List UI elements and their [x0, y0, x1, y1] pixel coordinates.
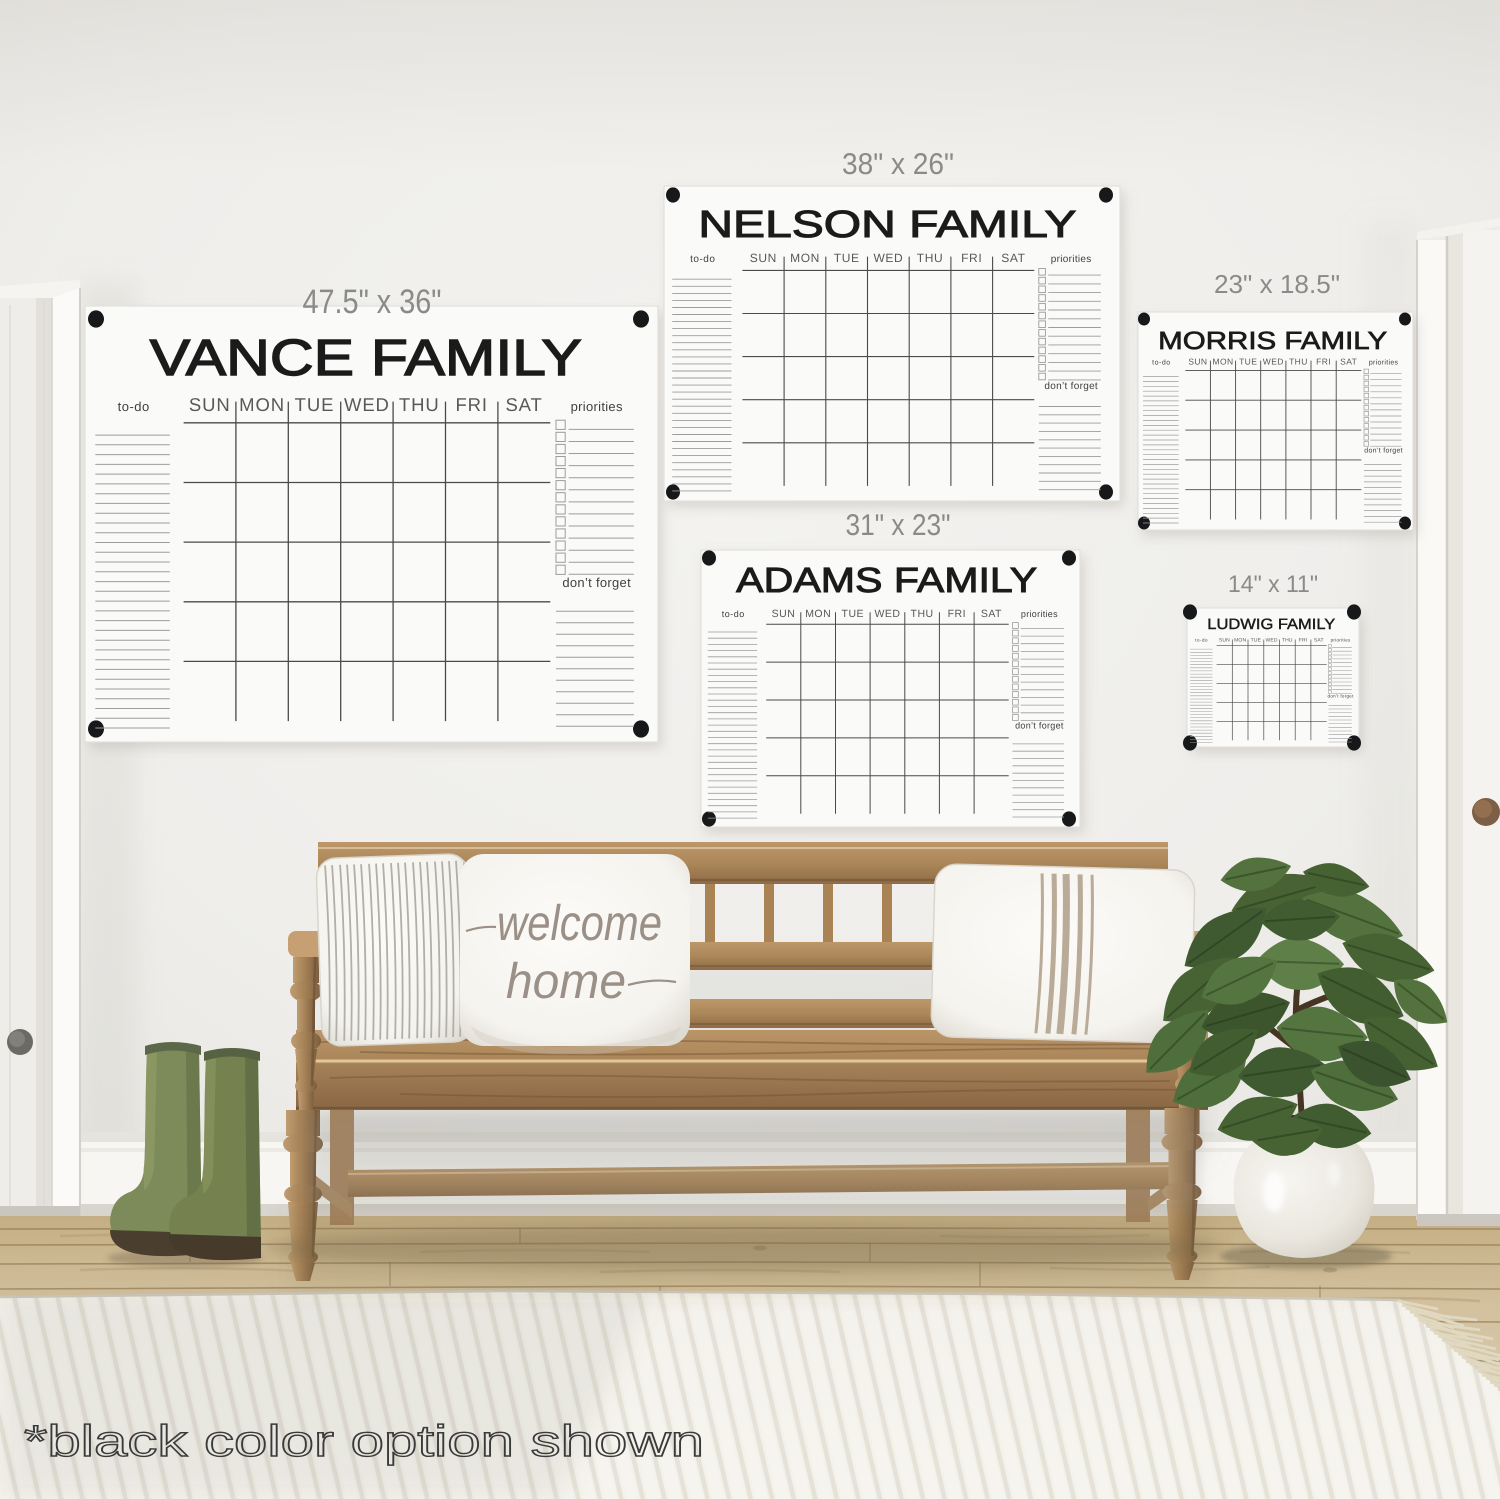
svg-text:47.5" x 36": 47.5" x 36"	[303, 283, 442, 321]
svg-text:FRI: FRI	[961, 251, 982, 265]
svg-text:priorities: priorities	[1369, 359, 1399, 367]
svg-text:WED: WED	[344, 394, 390, 415]
svg-text:to-do: to-do	[118, 399, 150, 414]
svg-text:don’t forget: don’t forget	[1328, 694, 1355, 699]
svg-text:WED: WED	[875, 608, 901, 620]
svg-text:TUE: TUE	[1251, 638, 1262, 644]
svg-text:MON: MON	[239, 394, 285, 415]
svg-text:SAT: SAT	[981, 608, 1002, 620]
svg-text:TUE: TUE	[834, 251, 860, 265]
svg-text:14" x 11": 14" x 11"	[1228, 571, 1318, 598]
svg-text:home: home	[506, 953, 626, 1009]
svg-text:SAT: SAT	[505, 394, 542, 415]
svg-text:SUN: SUN	[772, 608, 796, 620]
svg-text:THU: THU	[917, 251, 943, 265]
svg-text:THU: THU	[1282, 638, 1293, 644]
svg-text:MORRIS FAMILY: MORRIS FAMILY	[1158, 327, 1387, 355]
svg-text:TUE: TUE	[295, 394, 335, 415]
svg-text:WED: WED	[1263, 357, 1284, 367]
svg-text:to-do: to-do	[722, 609, 745, 619]
svg-text:welcome: welcome	[497, 895, 662, 951]
svg-text:don’t forget: don’t forget	[1015, 721, 1064, 731]
svg-text:NELSON FAMILY: NELSON FAMILY	[698, 204, 1076, 246]
svg-text:priorities: priorities	[1051, 254, 1092, 265]
svg-text:FRI: FRI	[1299, 638, 1308, 644]
svg-text:MON: MON	[790, 251, 820, 265]
svg-text:THU: THU	[1289, 357, 1308, 367]
svg-text:priorities: priorities	[1331, 638, 1351, 643]
svg-text:TUE: TUE	[1239, 357, 1257, 367]
svg-text:SUN: SUN	[750, 251, 777, 265]
svg-text:38" x 26": 38" x 26"	[842, 148, 954, 181]
svg-text:WED: WED	[874, 251, 904, 265]
svg-text:MON: MON	[1234, 638, 1246, 644]
svg-text:WED: WED	[1265, 638, 1277, 644]
svg-text:priorities: priorities	[1021, 609, 1058, 619]
svg-text:SUN: SUN	[1188, 357, 1207, 367]
svg-text:don’t forget: don’t forget	[1364, 447, 1403, 455]
svg-text:MON: MON	[1212, 357, 1233, 367]
svg-text:31" x 23": 31" x 23"	[846, 509, 951, 542]
svg-text:MON: MON	[805, 608, 831, 620]
svg-text:to-do: to-do	[690, 254, 715, 265]
svg-text:to-do: to-do	[1152, 359, 1170, 367]
svg-text:FRI: FRI	[455, 394, 488, 415]
svg-text:FRI: FRI	[948, 608, 966, 620]
svg-text:priorities: priorities	[571, 399, 623, 414]
svg-text:LUDWIG FAMILY: LUDWIG FAMILY	[1207, 616, 1335, 633]
svg-text:SUN: SUN	[189, 394, 231, 415]
svg-text:SAT: SAT	[1340, 357, 1357, 367]
svg-text:TUE: TUE	[842, 608, 865, 620]
svg-text:don’t forget: don’t forget	[1044, 381, 1098, 392]
svg-text:VANCE FAMILY: VANCE FAMILY	[150, 329, 582, 386]
svg-text:*black color option shown: *black color option shown	[24, 1417, 704, 1466]
svg-text:23" x 18.5": 23" x 18.5"	[1214, 269, 1340, 299]
svg-text:THU: THU	[399, 394, 440, 415]
svg-text:don’t forget: don’t forget	[562, 575, 631, 590]
svg-text:SAT: SAT	[1314, 638, 1324, 644]
svg-text:ADAMS FAMILY: ADAMS FAMILY	[736, 561, 1037, 600]
svg-text:SAT: SAT	[1001, 251, 1025, 265]
svg-text:FRI: FRI	[1316, 357, 1331, 367]
svg-text:THU: THU	[911, 608, 934, 620]
svg-text:to-do: to-do	[1195, 638, 1208, 643]
svg-text:SUN: SUN	[1219, 638, 1230, 644]
